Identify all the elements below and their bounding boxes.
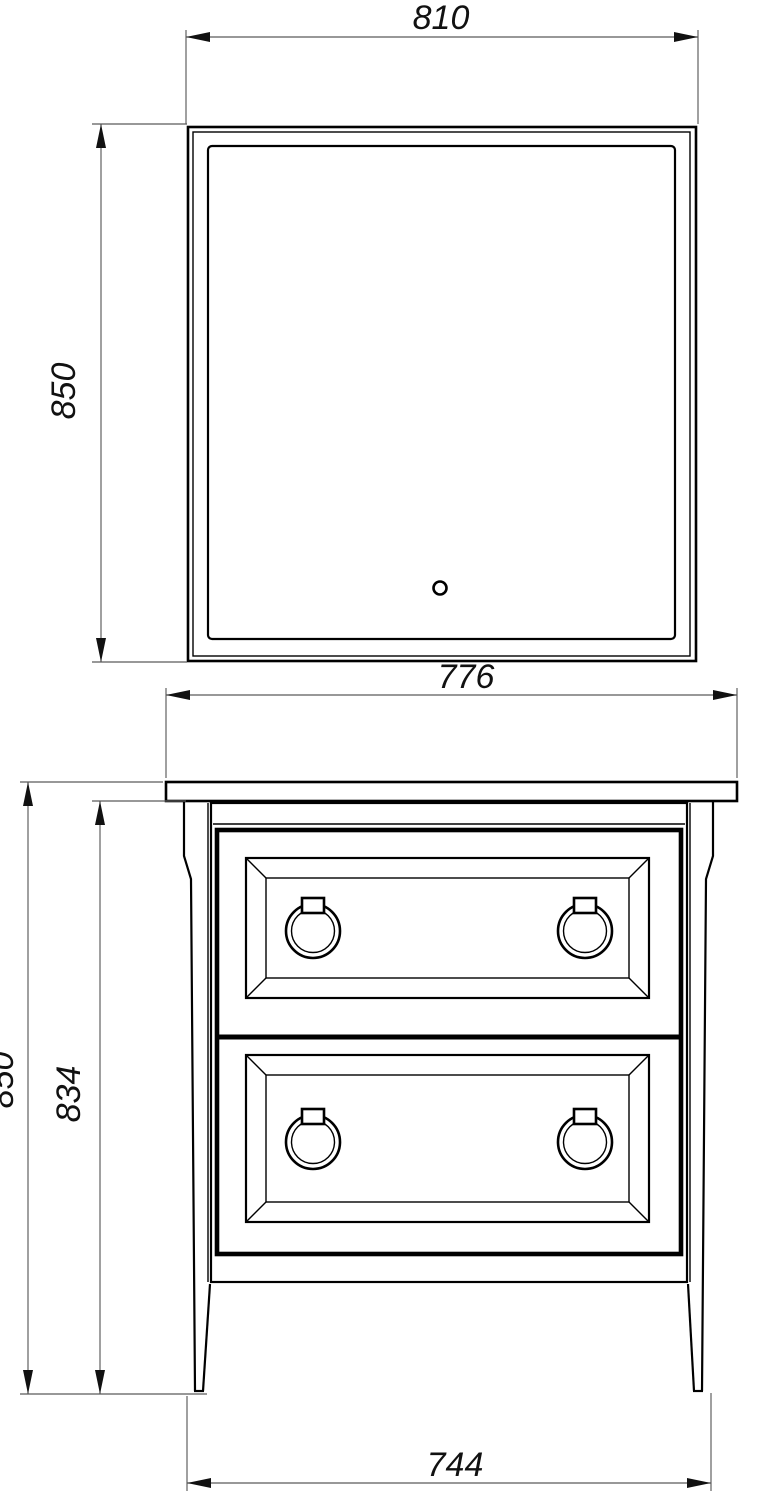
arrowhead-up xyxy=(95,801,105,825)
cabinet-body-height-label: 834 xyxy=(50,1066,88,1123)
drawer-1-panel xyxy=(266,878,629,978)
left-leg-outer-edge xyxy=(184,802,195,1391)
bevel-corner xyxy=(246,978,266,998)
dim-mirror-width: 810 xyxy=(186,0,698,124)
arrowhead-left xyxy=(187,1478,211,1488)
ring-pull-mount xyxy=(574,1109,596,1124)
drawer-2 xyxy=(246,1055,649,1222)
cabinet xyxy=(166,782,737,1391)
mirror-width-label: 810 xyxy=(413,0,470,37)
arrowhead-right xyxy=(674,32,698,42)
countertop xyxy=(166,782,737,801)
arrowhead-right xyxy=(713,690,737,700)
feet-width-label: 744 xyxy=(427,1446,484,1484)
bevel-corner xyxy=(629,1202,649,1222)
drawer-2-left-handle xyxy=(286,1109,340,1169)
ring-pull-mount xyxy=(302,898,324,913)
right-leg-outer-edge xyxy=(702,802,713,1391)
bevel-corner xyxy=(629,858,649,878)
ring-pull-inner xyxy=(292,1121,335,1164)
bevel-corner xyxy=(246,1055,266,1075)
arrowhead-down xyxy=(96,638,106,662)
dim-cabinet-top-width: 776 xyxy=(166,658,737,778)
ring-pull-mount xyxy=(574,898,596,913)
drawing-canvas: 810 850 776 xyxy=(0,0,764,1500)
arrowhead-left xyxy=(186,32,210,42)
ring-pull-inner xyxy=(292,910,335,953)
left-leg-lower-inner-edge xyxy=(203,1284,210,1391)
arrowhead-down xyxy=(95,1370,105,1394)
bevel-corner xyxy=(629,1055,649,1075)
cabinet-body xyxy=(211,803,687,1282)
bevel-corner xyxy=(629,978,649,998)
mirror-led-inner-frame xyxy=(208,146,675,639)
countertop-width-label: 776 xyxy=(438,658,495,696)
dim-cabinet-overall-height: 850 xyxy=(0,782,207,1394)
drawer-1-left-handle xyxy=(286,898,340,958)
left-leg xyxy=(184,802,210,1391)
drawer-2-right-handle xyxy=(558,1109,612,1169)
ring-pull-mount xyxy=(302,1109,324,1124)
dim-mirror-height: 850 xyxy=(45,124,187,662)
dim-cabinet-feet-width: 744 xyxy=(187,1393,711,1491)
mirror-middle-frame xyxy=(193,132,690,656)
mirror-touch-sensor-icon xyxy=(434,582,447,595)
right-leg-lower-inner-edge xyxy=(688,1284,694,1391)
drawer-1 xyxy=(246,858,649,998)
mirror-height-label: 850 xyxy=(45,363,83,420)
drawer-area-frame xyxy=(217,830,681,1254)
ring-pull-inner xyxy=(564,1121,607,1164)
arrowhead-left xyxy=(166,690,190,700)
mirror xyxy=(188,127,696,661)
drawer-1-front xyxy=(246,858,649,998)
bevel-corner xyxy=(246,858,266,878)
cabinet-overall-height-label: 850 xyxy=(0,1052,21,1109)
drawer-2-front xyxy=(246,1055,649,1222)
right-leg xyxy=(688,802,713,1391)
drawer-1-right-handle xyxy=(558,898,612,958)
arrowhead-right xyxy=(687,1478,711,1488)
bevel-corner xyxy=(246,1202,266,1222)
drawer-2-panel xyxy=(266,1075,629,1202)
arrowhead-up xyxy=(23,782,33,806)
arrowhead-down xyxy=(23,1370,33,1394)
arrowhead-up xyxy=(96,124,106,148)
dim-cabinet-body-height: 834 xyxy=(50,801,186,1394)
ring-pull-inner xyxy=(564,910,607,953)
